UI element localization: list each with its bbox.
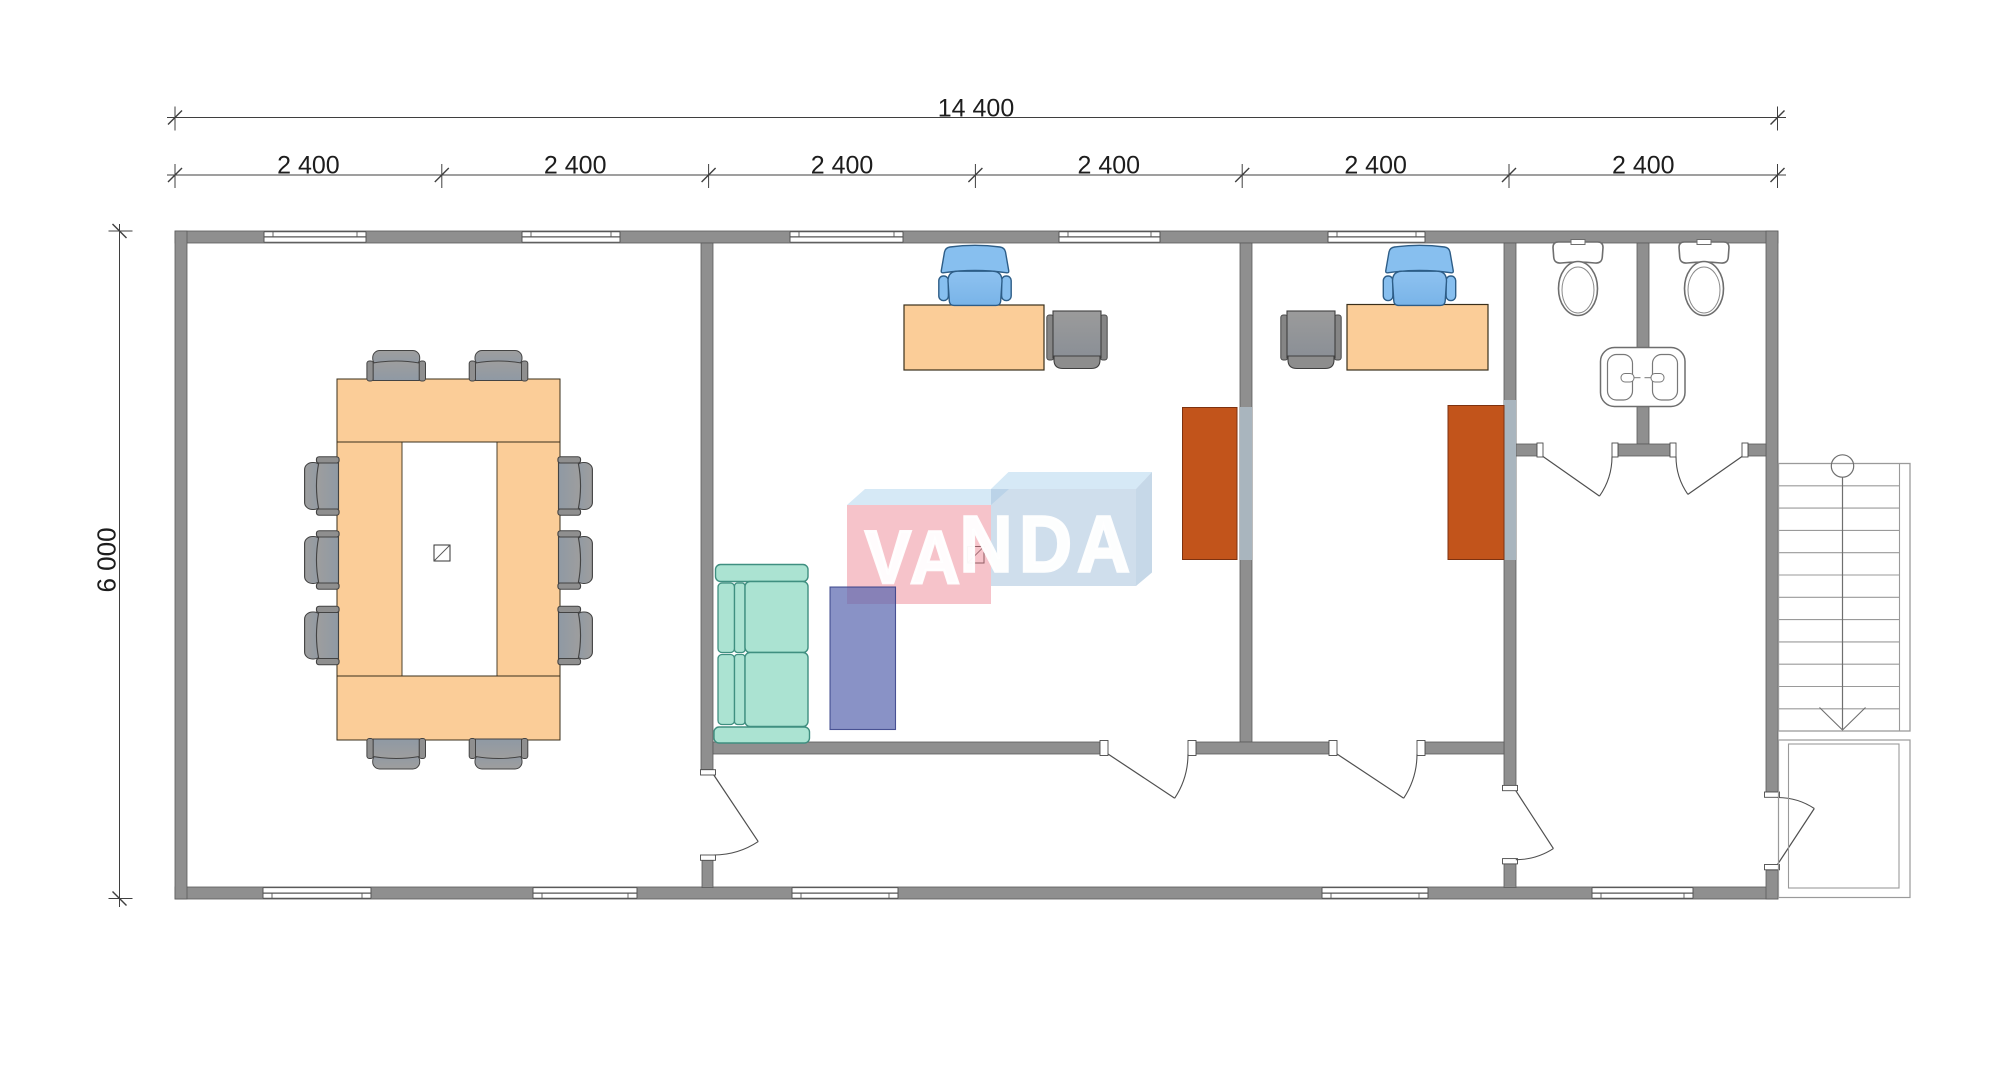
- svg-text:2 400: 2 400: [1344, 152, 1407, 180]
- svg-text:2 400: 2 400: [544, 152, 607, 180]
- svg-text:N: N: [960, 501, 1013, 589]
- svg-text:2 400: 2 400: [277, 152, 340, 180]
- svg-text:A: A: [1077, 501, 1130, 589]
- svg-text:A: A: [910, 515, 960, 599]
- svg-text:2 400: 2 400: [811, 152, 874, 180]
- svg-text:6 000: 6 000: [92, 527, 122, 592]
- svg-text:14 400: 14 400: [938, 95, 1014, 123]
- svg-text:D: D: [1019, 501, 1072, 589]
- svg-text:2 400: 2 400: [1612, 152, 1675, 180]
- svg-text:2 400: 2 400: [1078, 152, 1141, 180]
